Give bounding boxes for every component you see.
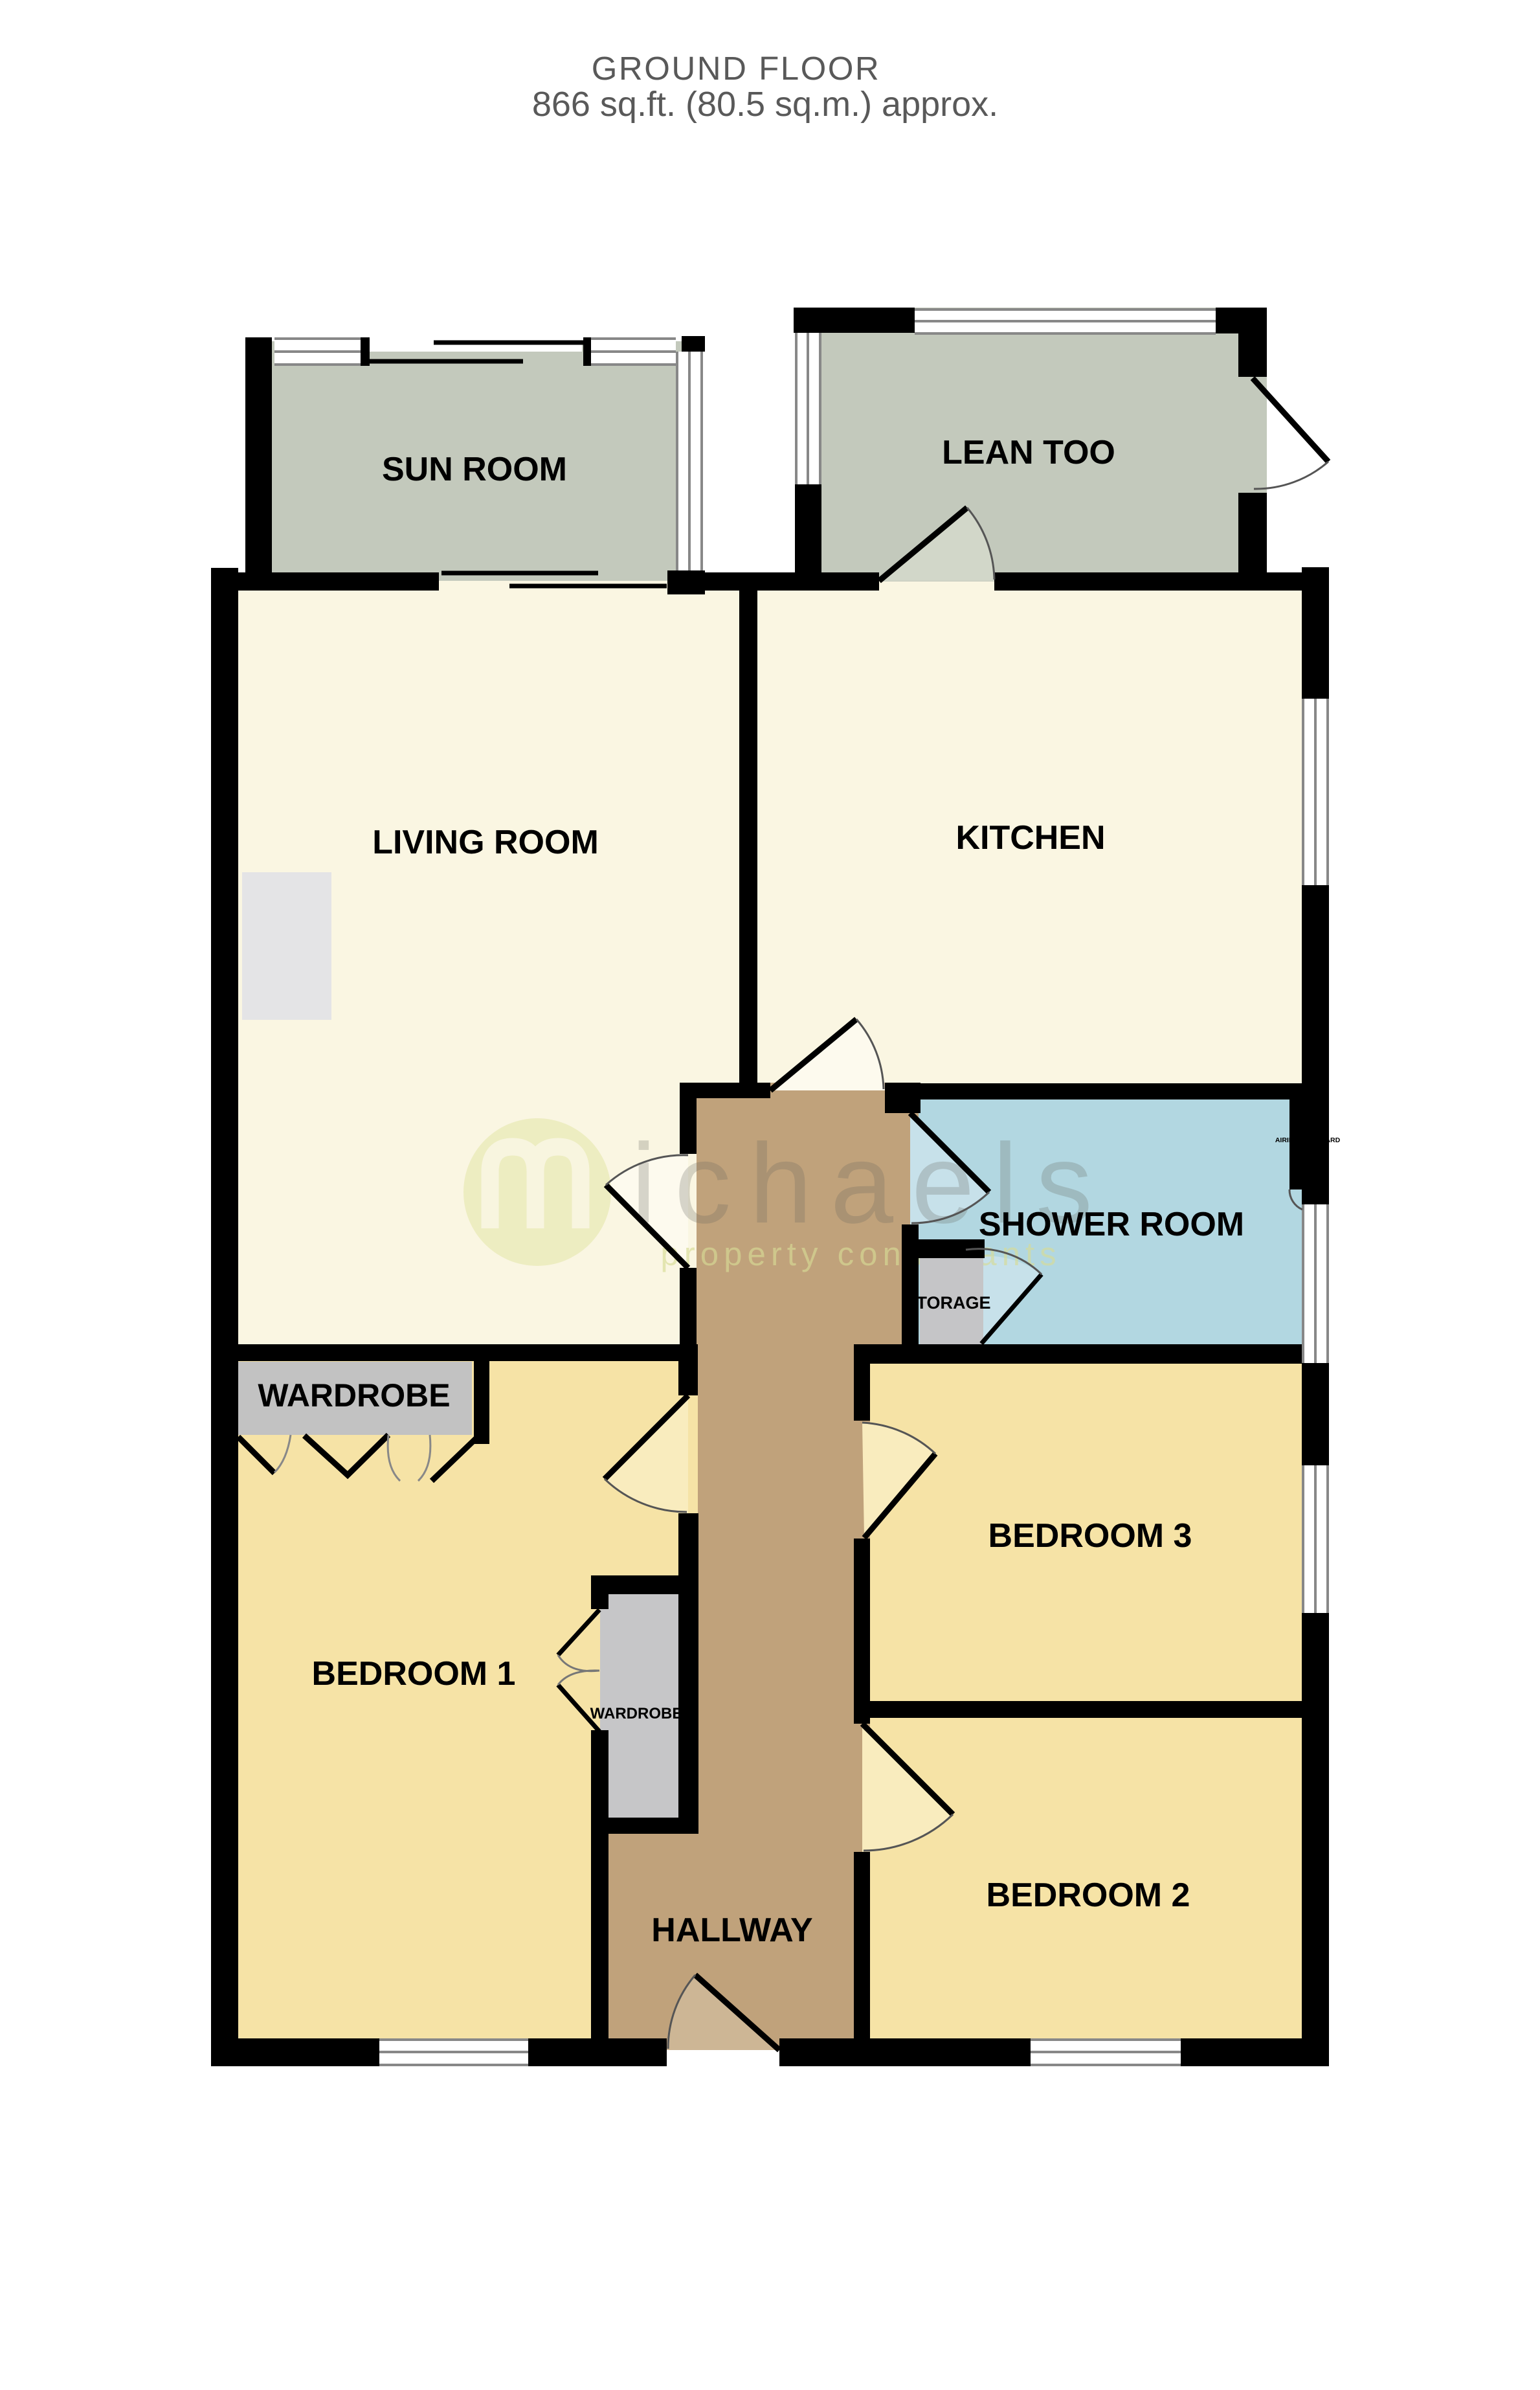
svg-text:AIRING CUPBOARD: AIRING CUPBOARD: [1275, 1136, 1341, 1144]
svg-text:GROUND FLOOR: GROUND FLOOR: [592, 50, 881, 87]
svg-text:BEDROOM 3: BEDROOM 3: [988, 1517, 1192, 1555]
svg-text:KITCHEN: KITCHEN: [955, 819, 1105, 857]
svg-text:SHOWER ROOM: SHOWER ROOM: [979, 1206, 1244, 1243]
svg-text:HALLWAY: HALLWAY: [651, 1911, 812, 1949]
svg-text:LEAN TOO: LEAN TOO: [942, 434, 1115, 471]
svg-text:BEDROOM 2: BEDROOM 2: [987, 1877, 1190, 1914]
svg-text:866 sq.ft. (80.5 sq.m.) approx: 866 sq.ft. (80.5 sq.m.) approx.: [532, 85, 998, 124]
svg-text:LIVING ROOM: LIVING ROOM: [372, 824, 599, 861]
svg-text:WARDROBE: WARDROBE: [258, 1377, 450, 1414]
svg-text:WARDROBE: WARDROBE: [590, 1705, 683, 1722]
svg-text:BEDROOM 1: BEDROOM 1: [312, 1655, 516, 1693]
svg-text:STORAGE: STORAGE: [904, 1293, 990, 1313]
svg-text:SUN ROOM: SUN ROOM: [382, 451, 567, 488]
